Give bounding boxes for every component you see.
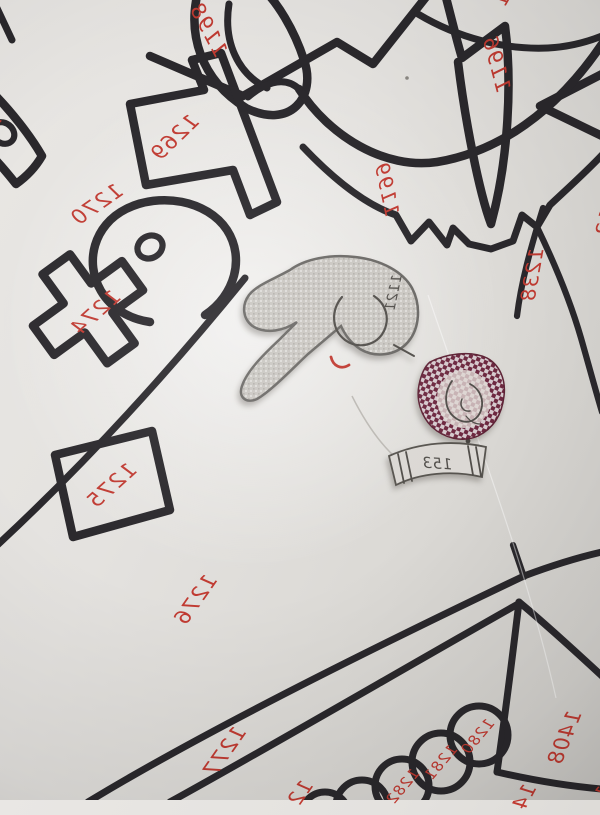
- paper-speck: [405, 76, 409, 80]
- corner-stroke: [0, 6, 12, 40]
- pattern-sheet-photo: 1198119611991238126912701274127512761277…: [0, 0, 600, 800]
- red-check-mark: [331, 357, 349, 367]
- maroon-piece-paper-patch: [437, 370, 491, 428]
- big-arc: [299, 44, 600, 163]
- left-wedge-outline: [0, 92, 42, 184]
- ink-drawing: [0, 0, 600, 800]
- fabric-piece-maroon: [418, 354, 504, 440]
- letter-e-hole: [133, 231, 167, 263]
- pattern-drawing: [0, 0, 600, 800]
- pencil-number-label: 153: [421, 455, 452, 472]
- band-line-1: [88, 552, 600, 800]
